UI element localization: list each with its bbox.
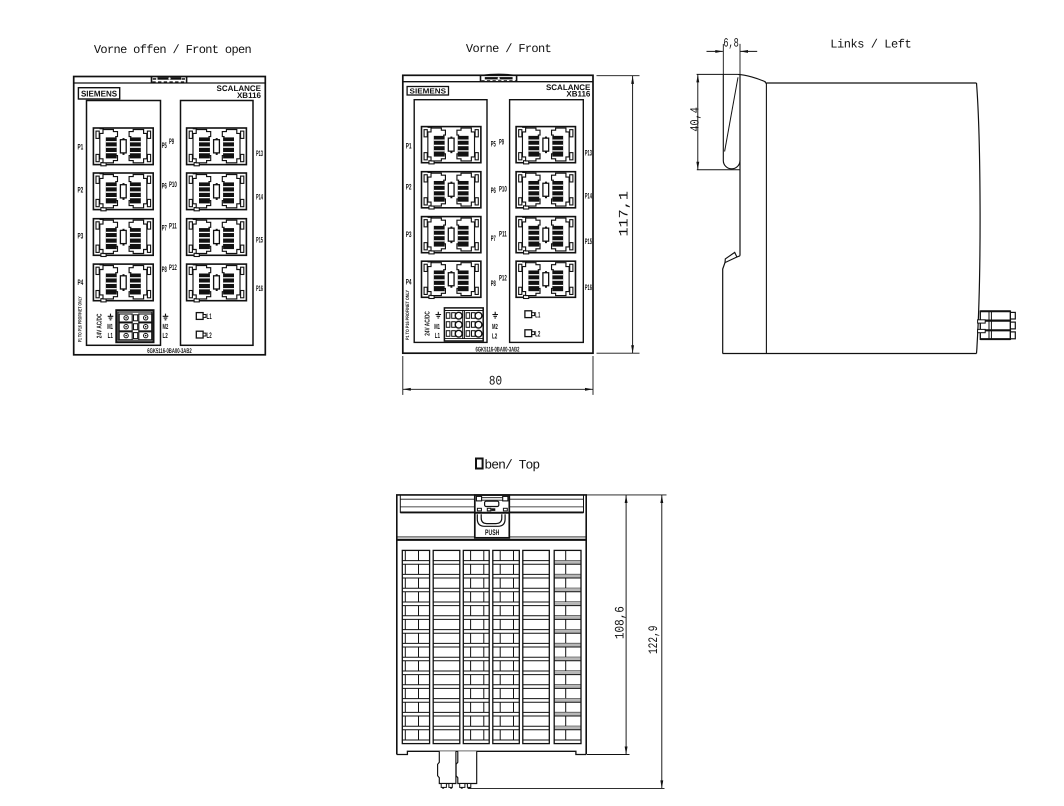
svg-text:P7: P7 bbox=[491, 234, 496, 243]
svg-text:M2: M2 bbox=[492, 322, 498, 331]
svg-text:M2: M2 bbox=[163, 322, 169, 331]
svg-text:P16: P16 bbox=[256, 284, 263, 293]
svg-text:122,9: 122,9 bbox=[646, 626, 661, 655]
svg-text:24V AC/DC: 24V AC/DC bbox=[95, 314, 103, 339]
svg-text:80: 80 bbox=[489, 374, 502, 389]
svg-text:L1: L1 bbox=[535, 310, 541, 319]
svg-text:P11: P11 bbox=[499, 229, 507, 238]
svg-text:L2: L2 bbox=[163, 331, 168, 340]
svg-text:P3: P3 bbox=[406, 230, 412, 239]
svg-text:P13: P13 bbox=[585, 149, 592, 158]
svg-text:P3: P3 bbox=[78, 232, 84, 241]
svg-text:P1: P1 bbox=[406, 141, 412, 150]
svg-text:P12: P12 bbox=[169, 263, 177, 272]
svg-text:P9: P9 bbox=[169, 137, 174, 146]
svg-text:SIEMENS: SIEMENS bbox=[81, 89, 118, 99]
svg-text:P2: P2 bbox=[78, 186, 84, 195]
svg-text:6GK5116-0BA00-3AB2: 6GK5116-0BA00-3AB2 bbox=[147, 348, 192, 355]
svg-text:P13: P13 bbox=[256, 149, 263, 158]
svg-text:P5: P5 bbox=[162, 141, 167, 150]
svg-text:P14: P14 bbox=[585, 191, 592, 200]
svg-text:P5: P5 bbox=[491, 140, 496, 149]
svg-text:P4: P4 bbox=[406, 278, 412, 287]
svg-text:6GK5116-0BA00-3AB2: 6GK5116-0BA00-3AB2 bbox=[476, 346, 520, 353]
svg-text:P7: P7 bbox=[162, 224, 167, 233]
svg-text:ben/ Top: ben/ Top bbox=[484, 457, 539, 472]
svg-text:P8: P8 bbox=[491, 279, 496, 288]
svg-text:P15: P15 bbox=[256, 236, 263, 245]
svg-text:40,4: 40,4 bbox=[688, 107, 702, 131]
svg-text:XB116: XB116 bbox=[566, 90, 591, 99]
svg-text:P1 TO P16 PROFINET ONLY: P1 TO P16 PROFINET ONLY bbox=[77, 296, 83, 343]
svg-text:SIEMENS: SIEMENS bbox=[410, 87, 447, 96]
svg-text:L1: L1 bbox=[108, 331, 113, 340]
svg-text:P4: P4 bbox=[78, 278, 84, 287]
svg-text:L1: L1 bbox=[207, 312, 213, 321]
svg-text:P10: P10 bbox=[499, 184, 507, 193]
svg-text:XB116: XB116 bbox=[237, 91, 262, 100]
svg-text:P16: P16 bbox=[585, 283, 592, 292]
svg-text:108,6: 108,6 bbox=[613, 606, 628, 639]
svg-text:P15: P15 bbox=[585, 237, 592, 246]
svg-text:L2: L2 bbox=[535, 329, 541, 338]
svg-text:P6: P6 bbox=[491, 186, 496, 195]
svg-text:PUSH: PUSH bbox=[485, 528, 499, 537]
svg-text:M1: M1 bbox=[107, 322, 113, 331]
svg-text:M1: M1 bbox=[434, 322, 440, 331]
svg-text:Vorne offen / Front open: Vorne offen / Front open bbox=[94, 43, 252, 57]
svg-text:Links / Left: Links / Left bbox=[830, 38, 911, 52]
svg-text:L2: L2 bbox=[492, 331, 497, 340]
svg-text:P1: P1 bbox=[78, 143, 84, 152]
svg-text:6,8: 6,8 bbox=[723, 37, 739, 51]
svg-text:P2: P2 bbox=[406, 183, 412, 192]
svg-text:P1 TO P16 PROFINET ONLY: P1 TO P16 PROFINET ONLY bbox=[405, 289, 411, 340]
svg-text:L1: L1 bbox=[435, 331, 440, 340]
svg-text:24V AC/DC: 24V AC/DC bbox=[423, 311, 431, 336]
svg-text:P10: P10 bbox=[169, 180, 177, 189]
svg-text:P11: P11 bbox=[169, 221, 177, 230]
svg-text:P12: P12 bbox=[499, 274, 507, 283]
svg-text:Vorne / Front: Vorne / Front bbox=[466, 42, 551, 56]
svg-text:P9: P9 bbox=[499, 138, 504, 147]
svg-text:117,1: 117,1 bbox=[616, 191, 631, 237]
svg-text:P14: P14 bbox=[256, 192, 263, 201]
svg-text:P6: P6 bbox=[162, 182, 167, 191]
svg-text:P8: P8 bbox=[162, 265, 167, 274]
svg-text:L2: L2 bbox=[207, 331, 213, 340]
